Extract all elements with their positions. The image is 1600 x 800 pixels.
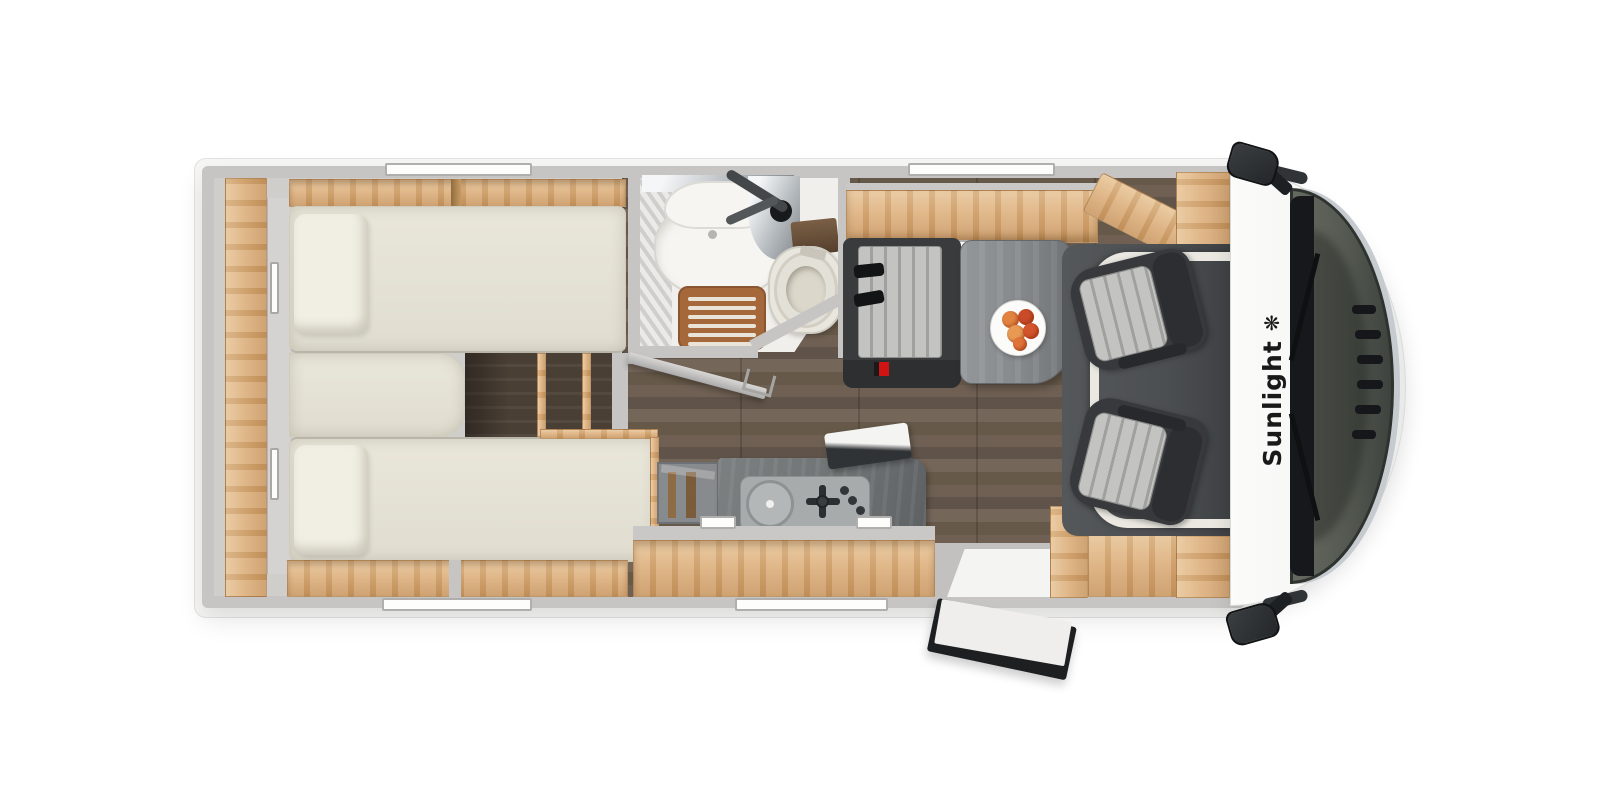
cabinet-bottle	[668, 472, 676, 518]
window-top-rear	[385, 163, 532, 176]
sun-logo-icon: ❋	[1260, 313, 1284, 331]
rear-garage-panel	[225, 178, 267, 597]
hob-knob-2	[848, 496, 857, 505]
kitchen-cabinet-front	[633, 540, 935, 597]
kitchen-glass-cabinet	[657, 462, 719, 524]
grille-bar	[1352, 305, 1376, 314]
motorhome-floorplan-image: Sunlight ❋	[0, 0, 1600, 800]
window-bottom-kitchen	[735, 598, 888, 611]
bottom-cabinet-divider	[449, 560, 461, 597]
grille-bar	[1355, 330, 1381, 339]
hob-knob-3	[856, 506, 865, 515]
grille-bar	[1352, 430, 1376, 439]
kitchen-sink-drain	[766, 500, 774, 508]
overhead-cabinet-dinette	[846, 190, 1098, 243]
bed-foot-edge-top	[540, 429, 658, 439]
cabinet-bottle	[686, 472, 696, 518]
window-bottom-rear	[382, 598, 532, 611]
grille-bar	[1357, 380, 1383, 389]
seatbelt-buckle	[874, 362, 889, 376]
pillow-bottom-bed	[294, 445, 368, 555]
sunlight-brand-logo: Sunlight ❋	[1257, 310, 1287, 470]
fruit	[1023, 323, 1039, 339]
kitchen-latch-right	[856, 516, 892, 529]
headboard-handle-top	[270, 262, 279, 314]
wiper-cowl	[1290, 196, 1314, 576]
bed-infill-cushion	[289, 353, 465, 437]
brand-name: Sunlight	[1258, 340, 1287, 466]
window-top-mid	[908, 163, 1055, 176]
step-side-wall	[612, 353, 628, 437]
step-divider-2	[582, 353, 591, 437]
bench-front-edge	[843, 360, 961, 388]
hob-burner-center	[816, 495, 829, 508]
grille-bar	[1355, 405, 1381, 414]
pillow-top-bed	[294, 214, 368, 334]
grille-bar	[1357, 355, 1383, 364]
headboard-panel	[267, 198, 290, 574]
fruit	[1013, 337, 1027, 351]
step-divider-1	[537, 353, 546, 437]
shelf-divider	[451, 179, 461, 207]
headboard-handle-bottom	[270, 448, 279, 500]
kitchen-latch-left	[700, 516, 736, 529]
sink-drain	[708, 230, 717, 239]
bathroom-wall-left	[628, 172, 640, 364]
hob-knob-1	[840, 486, 849, 495]
